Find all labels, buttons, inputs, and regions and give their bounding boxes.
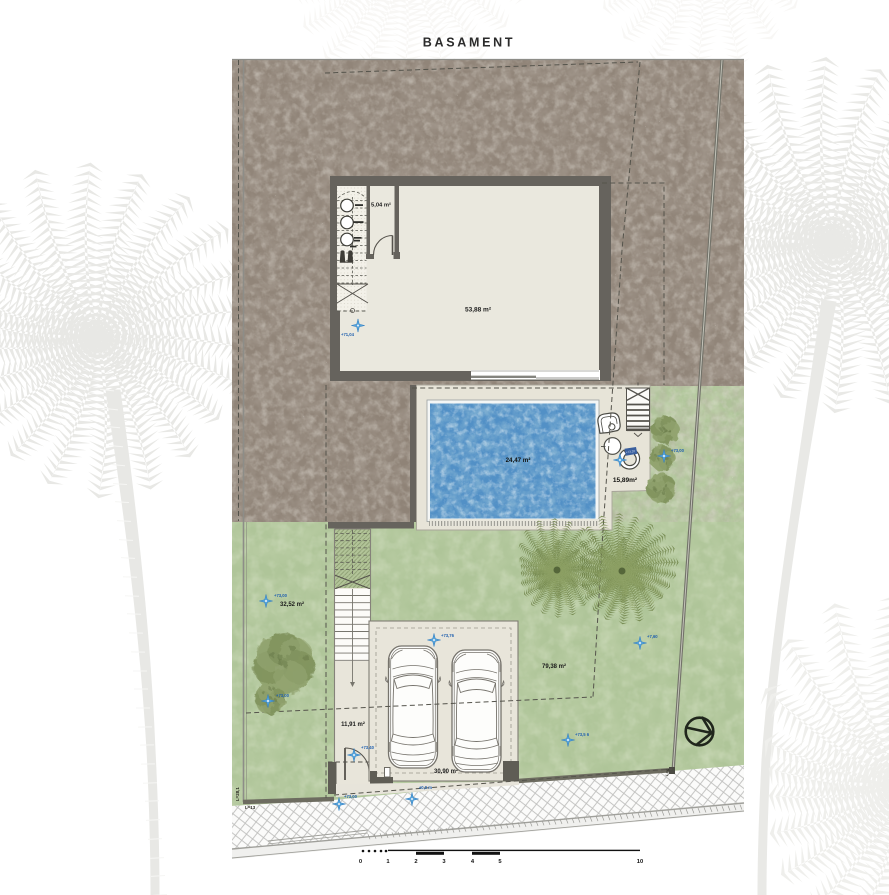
svg-text:+73,00: +73,00 [671, 448, 685, 453]
svg-text:24,47 m²: 24,47 m² [506, 457, 531, 464]
svg-text:BASAMENT: BASAMENT [423, 36, 515, 50]
svg-text:15,89m²: 15,89m² [613, 477, 638, 484]
svg-text:32,52 m²: 32,52 m² [280, 601, 304, 608]
svg-text:±0,0 m: ±0,0 m [419, 785, 432, 790]
svg-text:5,04 m²: 5,04 m² [371, 202, 391, 209]
svg-text:1: 1 [386, 859, 390, 865]
svg-text:4: 4 [471, 859, 475, 865]
svg-text:79,38 m²: 79,38 m² [542, 663, 566, 670]
svg-text:3: 3 [442, 859, 446, 865]
svg-text:11,91 m²: 11,91 m² [341, 721, 365, 728]
svg-text:+71,04: +71,04 [341, 332, 355, 337]
svg-text:+73,5 6: +73,5 6 [575, 732, 590, 737]
svg-text:+73,00: +73,00 [274, 593, 288, 598]
svg-text:2: 2 [414, 859, 417, 865]
svg-text:L=28,1: L=28,1 [235, 787, 240, 801]
svg-text:+73,00: +73,00 [344, 794, 358, 799]
svg-text:0: 0 [359, 859, 362, 865]
svg-text:+73,00: +73,00 [276, 693, 290, 698]
svg-text:30,90 m²: 30,90 m² [434, 768, 458, 775]
svg-text:10: 10 [637, 859, 643, 865]
svg-text:L=13: L=13 [245, 805, 256, 810]
svg-text:+73,40: +73,40 [361, 745, 375, 750]
svg-text:+73,76: +73,76 [441, 633, 455, 638]
svg-text:53,88 m²: 53,88 m² [465, 307, 492, 314]
svg-text:+7,60: +7,60 [647, 634, 658, 639]
svg-text:5: 5 [498, 859, 502, 865]
